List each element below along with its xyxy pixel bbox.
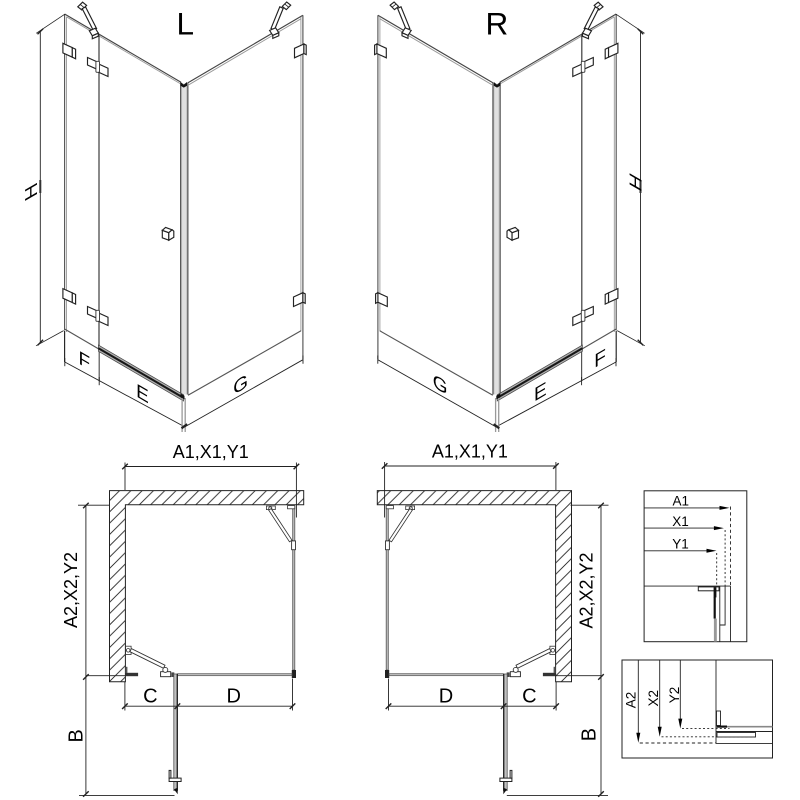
svg-text:A1,X1,Y1: A1,X1,Y1 [432, 442, 508, 462]
svg-text:C: C [143, 685, 157, 707]
svg-text:D: D [226, 685, 240, 707]
svg-text:A2: A2 [623, 692, 638, 709]
svg-text:B: B [65, 729, 87, 742]
svg-text:C: C [522, 685, 536, 707]
svg-text:Y2: Y2 [667, 687, 682, 704]
svg-text:A2,X2,Y2: A2,X2,Y2 [61, 552, 81, 628]
svg-text:A1: A1 [672, 494, 689, 509]
svg-text:R: R [486, 5, 509, 41]
svg-text:D: D [439, 685, 453, 707]
svg-text:A1,X1,Y1: A1,X1,Y1 [173, 442, 249, 462]
svg-text:X2: X2 [646, 690, 661, 707]
svg-text:X1: X1 [672, 514, 689, 529]
svg-text:Y1: Y1 [672, 537, 689, 552]
svg-text:A2,X2,Y2: A2,X2,Y2 [577, 552, 597, 628]
svg-text:L: L [177, 5, 195, 41]
svg-text:B: B [579, 728, 601, 741]
